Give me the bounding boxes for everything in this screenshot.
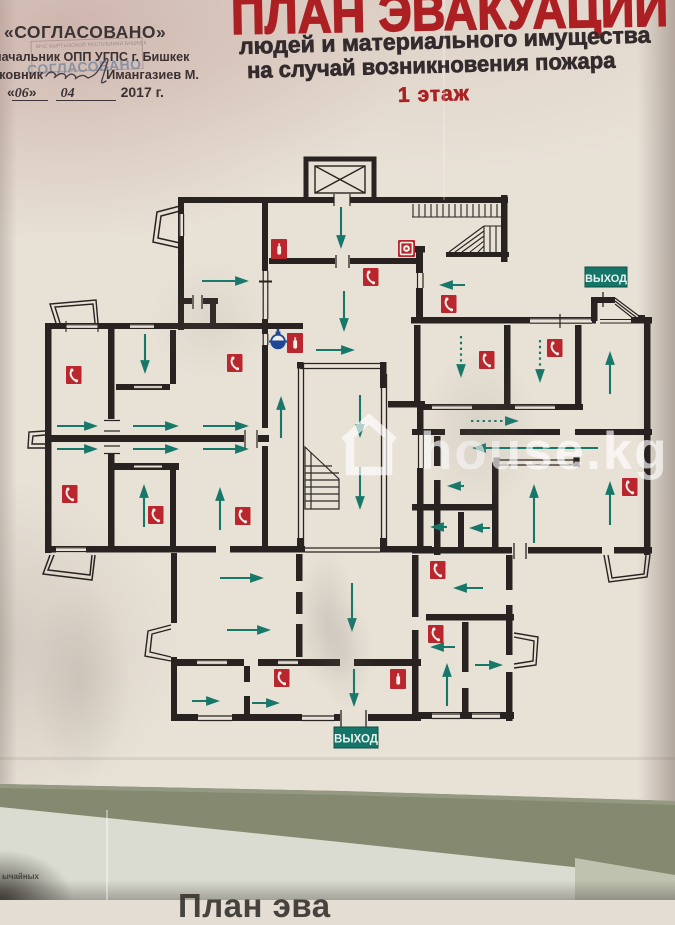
svg-text:ВЫХОД: ВЫХОД bbox=[334, 734, 378, 746]
svg-text:ВЫХОД: ВЫХОД bbox=[585, 273, 627, 285]
